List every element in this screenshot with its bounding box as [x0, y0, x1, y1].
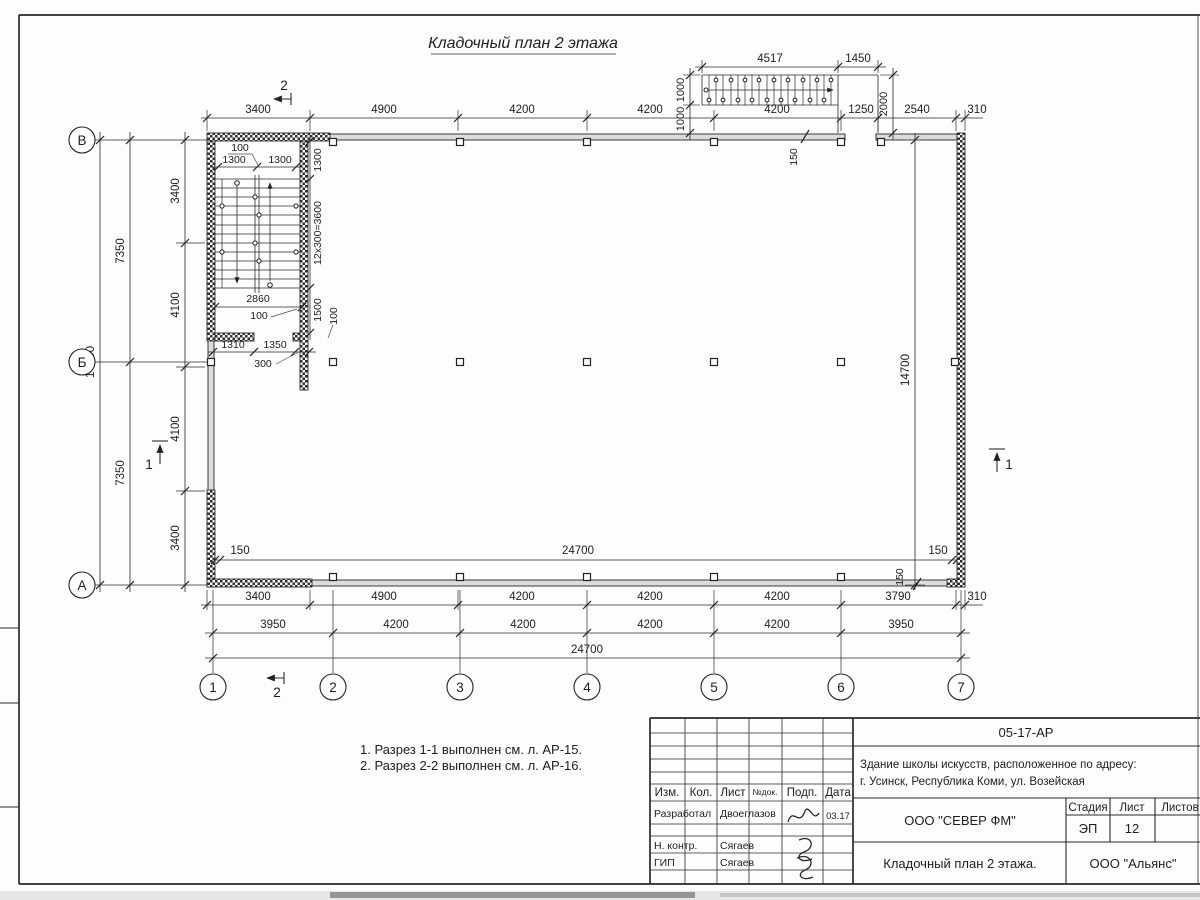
- dim-left-seg1: 4100: [170, 292, 182, 318]
- dim-top-6: 2540: [904, 104, 930, 116]
- axis-row-b: Б: [78, 355, 87, 370]
- tb-role-0: Разработал: [654, 808, 711, 820]
- title-block: Изм. Кол. Лист №док. Подп. Дата Разработ…: [650, 718, 1200, 884]
- dim-b1-2: 4200: [509, 591, 535, 603]
- section-2-top-label: 2: [280, 78, 288, 93]
- dim-sw-100gap: 100: [231, 142, 249, 154]
- tb-stage-value: ЭП: [1079, 821, 1098, 836]
- axis-col-1: 1: [209, 680, 217, 695]
- dim-sw-2860: 2860: [246, 293, 270, 305]
- dim-b2-2: 4200: [510, 619, 536, 631]
- tb-col-ndok: №док.: [753, 787, 778, 797]
- tb-drawing-title: Кладочный план 2 этажа.: [883, 856, 1037, 871]
- section-2-bottom-label: 2: [273, 685, 281, 700]
- axis-bubbles-cols: 1 2 3 4 5 6 7: [200, 674, 974, 700]
- axis-row-a: А: [77, 578, 86, 593]
- dim-chains-bottom: 3400 4900 4200 4200 4200 3790 310 3950 4…: [201, 590, 987, 673]
- dim-top-5: 1250: [848, 104, 874, 116]
- notes: 1. Разрез 1-1 выполнен см. л. АР-15. 2. …: [360, 742, 582, 773]
- drawing-sheet: Кладочный план 2 этажа: [0, 0, 1200, 900]
- tb-col-izm: Изм.: [655, 787, 680, 799]
- axis-col-3: 3: [456, 680, 464, 695]
- dim-inner-150r: 150: [928, 545, 947, 557]
- note-line-2: 2. Разрез 2-2 выполнен см. л. АР-16.: [360, 758, 582, 773]
- tb-col-podp: Подп.: [787, 787, 818, 799]
- dim-sw-100v: 100: [328, 307, 340, 325]
- dim-inner-150l: 150: [230, 545, 249, 557]
- section-1-right-label: 1: [1005, 457, 1013, 472]
- dim-left-seg2: 4100: [170, 416, 182, 442]
- section-1-left-label: 1: [145, 457, 153, 472]
- tb-role-1: Н. контр.: [654, 840, 697, 852]
- dim-sw-1310: 1310: [221, 339, 245, 351]
- dim-top-3: 4200: [637, 104, 663, 116]
- dim-sw-100l: 100: [250, 310, 268, 322]
- dim-b1-0: 3400: [245, 591, 271, 603]
- staircase: [215, 175, 300, 293]
- dim-ext-4517: 4517: [757, 53, 783, 65]
- dim-top-2: 4200: [509, 104, 535, 116]
- dim-ext-1000b: 1000: [675, 107, 687, 131]
- section-marks: 2 2 1 1: [145, 78, 1013, 700]
- axis-col-7: 7: [957, 680, 965, 695]
- sheet-frame: [0, 15, 1200, 884]
- signature-2: [797, 839, 813, 879]
- dim-inner-24700: 24700: [562, 545, 594, 557]
- dim-left-7350a: 7350: [115, 238, 127, 264]
- dim-ext-1450: 1450: [845, 53, 871, 65]
- dim-chains-left: 14700 7350 7350 3400 4100 4100 3400: [85, 132, 207, 592]
- dim-b1-1: 4900: [371, 591, 397, 603]
- dim-right-total: 14700: [900, 354, 912, 386]
- tb-object-line1: Здание школы искусств, расположенное по …: [860, 759, 1137, 771]
- dim-b1-6: 310: [967, 591, 986, 603]
- dim-sw-1350: 1350: [263, 339, 287, 351]
- dim-b1-3: 4200: [637, 591, 663, 603]
- axis-col-2: 2: [329, 680, 337, 695]
- dim-top-4: 4200: [764, 104, 790, 116]
- drawing-title: Кладочный план 2 этажа: [428, 35, 618, 54]
- signature-1: [788, 809, 819, 822]
- tb-sheet-number: 12: [1125, 821, 1139, 836]
- tb-doc-code: 05-17-АР: [999, 725, 1054, 740]
- tb-date-0: 03.17: [826, 811, 850, 822]
- dim-chain-top: 3400 4900 4200 4200 4200 1250 2540 310: [201, 104, 987, 131]
- dim-sw-300: 300: [254, 358, 272, 370]
- dim-b2-0: 3950: [260, 619, 286, 631]
- dim-sw-1300off: 1300: [312, 148, 324, 172]
- scan-artifacts: [0, 891, 1200, 900]
- tb-name-2: Сягаев: [720, 857, 755, 869]
- dim-b1-5: 3790: [885, 591, 911, 603]
- dim-sw-1500: 1500: [312, 298, 324, 322]
- tb-stage-label: Стадия: [1068, 802, 1107, 814]
- dim-top-0: 3400: [245, 104, 271, 116]
- dim-sw-steps: 12x300=3600: [312, 201, 324, 265]
- tb-contractor: ООО "Альянс": [1090, 856, 1177, 871]
- dim-b3: 24700: [571, 644, 603, 656]
- tb-object-line2: г. Усинск, Республика Коми, ул. Возейска…: [860, 776, 1085, 788]
- tb-sheets-label: Листов: [1161, 802, 1198, 814]
- note-line-1: 1. Разрез 1-1 выполнен см. л. АР-15.: [360, 742, 582, 757]
- tb-company: ООО "СЕВЕР ФМ": [904, 813, 1016, 828]
- dim-top-7: 310: [967, 104, 986, 116]
- dim-b2-3: 4200: [637, 619, 663, 631]
- dim-sw-1300b: 1300: [268, 154, 292, 166]
- axis-row-v: В: [77, 133, 86, 148]
- dim-right-150v: 150: [894, 568, 906, 586]
- tb-role-2: ГИП: [654, 857, 675, 869]
- dim-left-seg0: 3400: [170, 178, 182, 204]
- axis-col-5: 5: [710, 680, 718, 695]
- masonry-plan-svg: Кладочный план 2 этажа: [0, 0, 1200, 900]
- page-title: Кладочный план 2 этажа: [428, 35, 618, 52]
- dim-ext-2000: 2000: [878, 92, 890, 116]
- dim-left-seg3: 3400: [170, 525, 182, 551]
- tb-name-0: Двоеглазов: [720, 808, 776, 820]
- tb-col-kol: Кол.: [690, 787, 713, 799]
- dim-ext-1000a: 1000: [675, 78, 687, 102]
- tb-col-list: Лист: [721, 787, 747, 799]
- axis-col-6: 6: [837, 680, 845, 695]
- axis-col-4: 4: [583, 680, 591, 695]
- dim-sw-1300a: 1300: [222, 154, 246, 166]
- dim-top-1: 4900: [371, 104, 397, 116]
- dim-wall-150-top: 150: [788, 148, 800, 166]
- dim-left-7350b: 7350: [115, 460, 127, 486]
- tb-name-1: Сягаев: [720, 840, 755, 852]
- dim-b2-4: 4200: [764, 619, 790, 631]
- tb-sheet-label: Лист: [1120, 802, 1146, 814]
- dim-b2-5: 3950: [888, 619, 914, 631]
- dim-b2-1: 4200: [383, 619, 409, 631]
- dim-b1-4: 4200: [764, 591, 790, 603]
- axis-bubbles-rows: В Б А: [69, 127, 95, 598]
- tb-col-data: Дата: [825, 787, 851, 799]
